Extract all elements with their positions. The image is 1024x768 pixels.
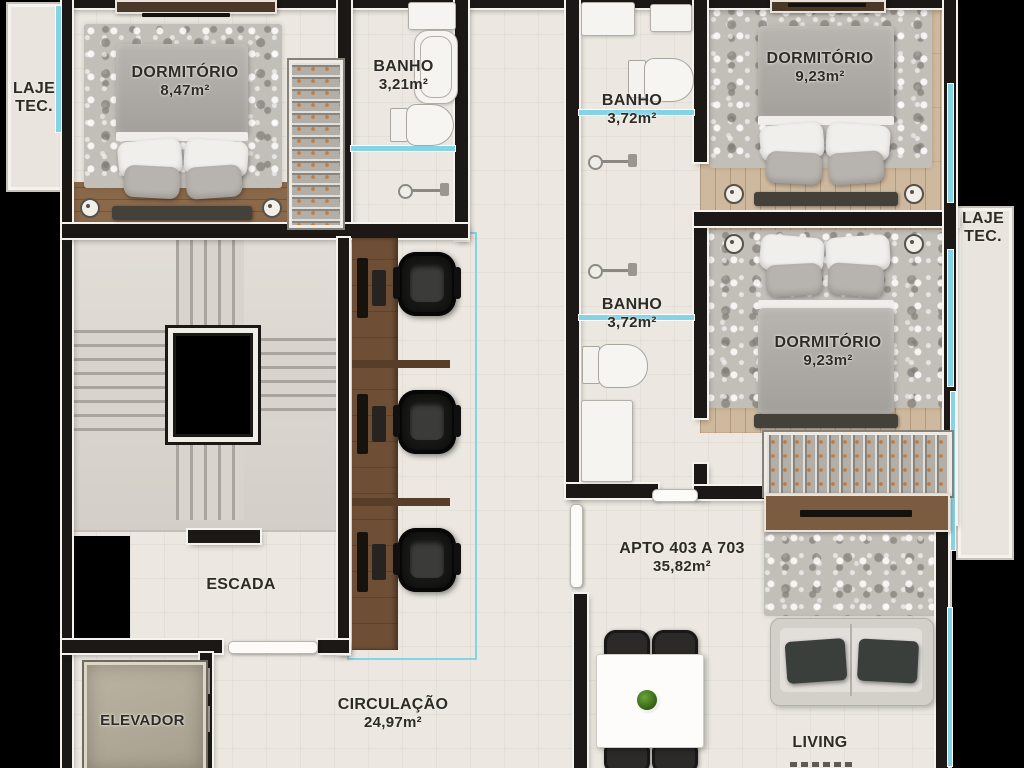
room-area: 3,21m² bbox=[346, 76, 461, 93]
keyboard bbox=[372, 406, 386, 442]
monitor bbox=[357, 394, 368, 454]
room-area: 3,72m² bbox=[572, 110, 692, 127]
bed-headboard bbox=[112, 206, 252, 220]
room-label-dormitorio-2: DORMITÓRIO 9,23m² bbox=[740, 50, 900, 86]
ceiling-spot bbox=[80, 198, 100, 218]
laje-tec-right bbox=[956, 206, 1014, 560]
laje-right-label: LAJE TEC. bbox=[956, 210, 1010, 247]
room-name: BANHO bbox=[346, 58, 461, 76]
wardrobe bbox=[764, 432, 952, 496]
sofa-cushion bbox=[785, 638, 848, 684]
apartment-name: APTO 403 A 703 bbox=[582, 540, 782, 558]
ceiling-spot bbox=[724, 184, 744, 204]
shower-icon bbox=[602, 269, 630, 272]
plant bbox=[637, 690, 657, 710]
room-name: DORMITÓRIO bbox=[748, 334, 908, 352]
shower-icon bbox=[628, 263, 637, 276]
wall bbox=[566, 484, 658, 498]
room-name: CIRCULAÇÃO bbox=[308, 696, 478, 714]
pillow bbox=[827, 150, 885, 186]
bathroom-sink bbox=[408, 2, 456, 30]
pillow bbox=[123, 165, 181, 200]
wardrobe bbox=[289, 60, 343, 228]
shaft bbox=[66, 536, 130, 642]
window bbox=[948, 84, 953, 202]
laje-line1: LAJE bbox=[6, 80, 62, 98]
shower-icon bbox=[588, 155, 603, 170]
bed-headboard bbox=[754, 414, 898, 428]
stair-flight bbox=[176, 240, 244, 328]
room-area: 24,97m² bbox=[308, 714, 478, 731]
monitor bbox=[357, 532, 368, 592]
bathroom-sink bbox=[581, 2, 635, 36]
laje-line2: TEC. bbox=[956, 228, 1010, 246]
bathroom-counter bbox=[650, 4, 692, 32]
shower-icon bbox=[440, 183, 449, 196]
room-label-banho-2: BANHO 3,72m² bbox=[572, 92, 692, 128]
door-leaf bbox=[652, 489, 698, 502]
wall bbox=[318, 640, 349, 653]
wall bbox=[574, 594, 587, 768]
room-area: 3,72m² bbox=[572, 314, 692, 331]
living-area-clipped-text bbox=[790, 762, 852, 767]
office-chair bbox=[398, 390, 456, 454]
background-mask bbox=[948, 0, 1024, 206]
wall bbox=[455, 0, 468, 240]
window bbox=[948, 608, 952, 766]
room-label-banho-1: BANHO 3,21m² bbox=[346, 58, 461, 94]
bed-sheet-fold bbox=[758, 116, 894, 125]
room-label-escada: ESCADA bbox=[186, 576, 296, 594]
shower-icon bbox=[602, 160, 630, 163]
ceiling-spot bbox=[724, 234, 744, 254]
stair-void bbox=[168, 328, 258, 442]
tv-dresser bbox=[115, 0, 277, 14]
desk-divider bbox=[352, 360, 450, 368]
pillow bbox=[765, 151, 823, 186]
room-name: BANHO bbox=[572, 92, 692, 110]
sofa-divider bbox=[850, 624, 852, 696]
room-area: 8,47m² bbox=[100, 82, 270, 99]
tv bbox=[788, 3, 866, 7]
monitor bbox=[357, 258, 368, 318]
room-name: BANHO bbox=[572, 296, 692, 314]
wall bbox=[694, 214, 707, 418]
office-chair bbox=[398, 528, 456, 592]
ceiling-spot bbox=[262, 198, 282, 218]
door-leaf bbox=[228, 641, 318, 654]
sofa-cushion bbox=[857, 638, 919, 683]
toilet bbox=[406, 104, 454, 146]
window bbox=[948, 250, 953, 386]
window bbox=[351, 146, 455, 151]
wall bbox=[694, 212, 958, 226]
wall bbox=[694, 0, 707, 162]
laje-line2: TEC. bbox=[6, 98, 62, 116]
room-name: ELEVADOR bbox=[80, 712, 205, 729]
room-label-elevador: ELEVADOR bbox=[80, 712, 205, 729]
office-chair bbox=[398, 252, 456, 316]
wall bbox=[338, 238, 349, 654]
pillow bbox=[827, 262, 885, 298]
stair-flight bbox=[248, 338, 336, 422]
room-name: DORMITÓRIO bbox=[740, 50, 900, 68]
room-name: DORMITÓRIO bbox=[100, 64, 270, 82]
shower-icon bbox=[412, 189, 442, 192]
floor-plan: LAJE TEC. LAJE TEC. DORMITÓRIO 8,47m² BA… bbox=[0, 0, 1024, 768]
apartment-label: APTO 403 A 703 35,82m² bbox=[582, 540, 782, 576]
shower-icon bbox=[588, 264, 603, 279]
shower-icon bbox=[398, 184, 413, 199]
laje-left-label: LAJE TEC. bbox=[6, 80, 62, 117]
laje-line1: LAJE bbox=[956, 210, 1010, 228]
room-label-circulacao: CIRCULAÇÃO 24,97m² bbox=[308, 696, 478, 732]
room-label-dormitorio-1: DORMITÓRIO 8,47m² bbox=[100, 64, 270, 100]
room-label-dormitorio-3: DORMITÓRIO 9,23m² bbox=[748, 334, 908, 370]
shower-icon bbox=[628, 154, 637, 167]
tv bbox=[142, 13, 230, 17]
room-name: ESCADA bbox=[186, 576, 296, 594]
wall bbox=[936, 520, 948, 768]
pillow bbox=[765, 263, 823, 298]
background-mask bbox=[0, 188, 62, 768]
tv bbox=[800, 510, 912, 517]
wall bbox=[566, 0, 579, 498]
bed-headboard bbox=[754, 192, 898, 206]
background-mask bbox=[954, 556, 1024, 768]
ceiling-spot bbox=[904, 184, 924, 204]
wall bbox=[62, 640, 222, 653]
keyboard bbox=[372, 544, 386, 580]
room-label-banho-3: BANHO 3,72m² bbox=[572, 296, 692, 332]
desk-divider bbox=[352, 498, 450, 506]
apartment-area: 35,82m² bbox=[582, 558, 782, 575]
stair-flight bbox=[176, 434, 244, 520]
keyboard bbox=[372, 270, 386, 306]
ceiling-spot bbox=[904, 234, 924, 254]
bathroom-sink bbox=[581, 400, 633, 482]
wall bbox=[188, 530, 260, 543]
room-area: 9,23m² bbox=[748, 352, 908, 369]
toilet bbox=[598, 344, 648, 388]
pillow bbox=[185, 164, 243, 200]
room-label-living: LIVING bbox=[760, 734, 880, 752]
stair-flight bbox=[74, 330, 166, 436]
wall bbox=[62, 224, 468, 238]
bed-sheet-fold bbox=[116, 132, 248, 141]
room-name: LIVING bbox=[760, 734, 880, 752]
room-area: 9,23m² bbox=[740, 68, 900, 85]
